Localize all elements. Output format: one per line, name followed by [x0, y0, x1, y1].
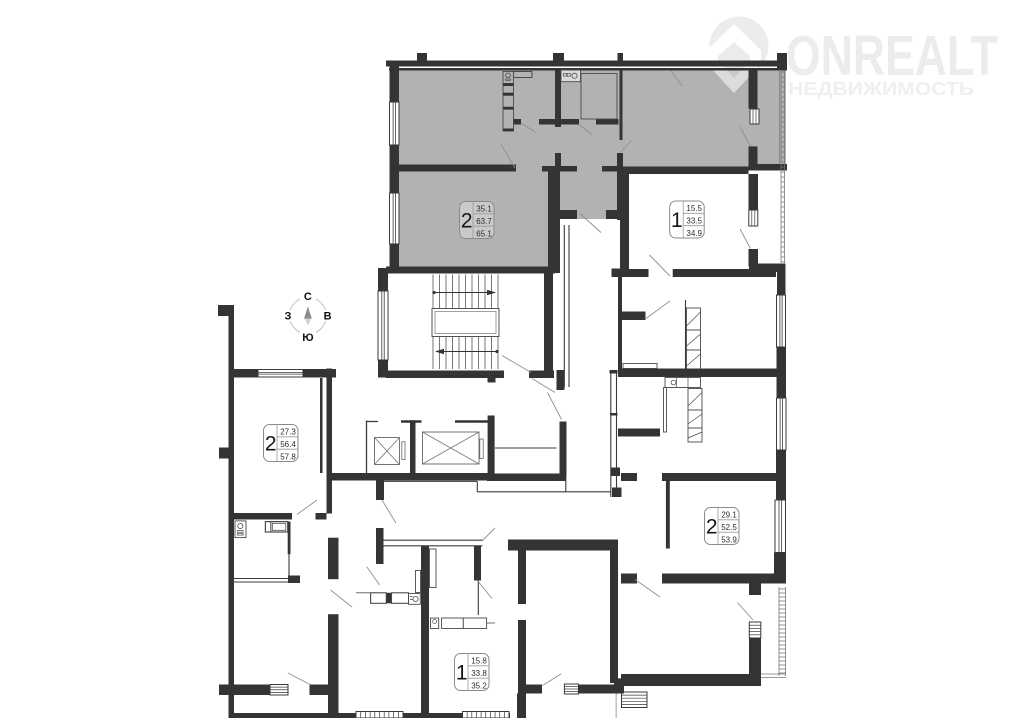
svg-text:1: 1	[456, 662, 468, 685]
svg-text:С: С	[304, 291, 312, 303]
svg-text:2: 2	[706, 516, 718, 539]
svg-text:33.5: 33.5	[686, 217, 702, 226]
svg-text:27.3: 27.3	[280, 428, 296, 437]
svg-text:НЕДВИЖИМОСТЬ: НЕДВИЖИМОСТЬ	[788, 78, 974, 99]
svg-text:2: 2	[265, 433, 277, 456]
svg-text:1: 1	[671, 209, 683, 232]
svg-text:Ю: Ю	[302, 332, 313, 344]
svg-text:56.4: 56.4	[280, 440, 296, 449]
svg-text:В: В	[324, 311, 332, 323]
svg-text:35.2: 35.2	[471, 681, 487, 690]
svg-text:53.9: 53.9	[721, 535, 737, 544]
svg-text:63.7: 63.7	[476, 217, 492, 226]
svg-text:52.5: 52.5	[721, 523, 737, 532]
svg-text:65.1: 65.1	[476, 229, 492, 238]
svg-text:29.1: 29.1	[721, 511, 737, 520]
svg-text:З: З	[285, 311, 292, 323]
svg-text:33.8: 33.8	[471, 669, 487, 678]
svg-text:57.8: 57.8	[280, 452, 296, 461]
svg-text:2: 2	[461, 210, 473, 233]
svg-text:34.9: 34.9	[686, 229, 702, 238]
svg-text:35.1: 35.1	[476, 205, 492, 214]
svg-text:15.8: 15.8	[471, 657, 487, 666]
svg-text:15.5: 15.5	[686, 204, 702, 213]
